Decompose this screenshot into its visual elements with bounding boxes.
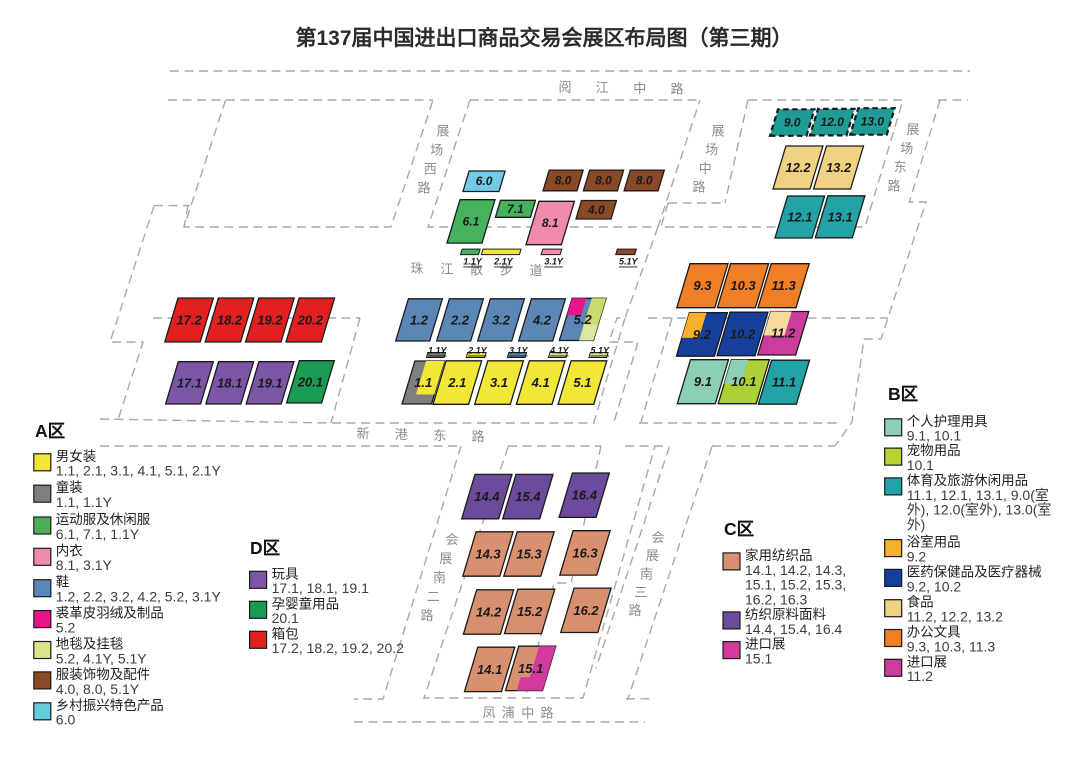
svg-text:8.0: 8.0 bbox=[555, 174, 572, 188]
svg-text:B区: B区 bbox=[888, 384, 918, 404]
svg-text:运动服及休闲服: 运动服及休闲服 bbox=[56, 512, 151, 527]
svg-text:17.1: 17.1 bbox=[177, 375, 202, 390]
svg-text:5.2, 4.1Y, 5.1Y: 5.2, 4.1Y, 5.1Y bbox=[56, 650, 147, 666]
svg-text:纺织原料面料: 纺织原料面料 bbox=[745, 607, 826, 622]
svg-text:8.0: 8.0 bbox=[595, 174, 612, 188]
svg-text:9.2, 10.2: 9.2, 10.2 bbox=[907, 578, 962, 594]
svg-text:19.1: 19.1 bbox=[257, 375, 282, 390]
svg-text:服装饰物及配件: 服装饰物及配件 bbox=[56, 667, 151, 682]
svg-text:裘革皮羽绒及制品: 裘革皮羽绒及制品 bbox=[56, 606, 164, 621]
svg-text:外): 外) bbox=[907, 517, 926, 533]
svg-text:食品: 食品 bbox=[907, 594, 934, 610]
svg-text:东: 东 bbox=[433, 428, 446, 443]
svg-text:1.1, 2.1, 3.1, 4.1, 5.1, 2.1Y: 1.1, 2.1, 3.1, 4.1, 5.1, 2.1Y bbox=[56, 463, 222, 479]
svg-text:路: 路 bbox=[887, 179, 900, 194]
svg-text:15.1, 15.2, 15.3,: 15.1, 15.2, 15.3, bbox=[745, 577, 846, 593]
svg-text:9.3, 10.3, 11.3: 9.3, 10.3, 11.3 bbox=[907, 638, 996, 654]
svg-text:会: 会 bbox=[445, 532, 458, 547]
svg-text:道: 道 bbox=[529, 263, 542, 278]
svg-text:路: 路 bbox=[692, 180, 705, 195]
svg-text:17.2, 18.2, 19.2, 20.2: 17.2, 18.2, 19.2, 20.2 bbox=[272, 640, 405, 656]
svg-text:10.2: 10.2 bbox=[730, 326, 756, 341]
svg-text:医药保健品及医疗器械: 医药保健品及医疗器械 bbox=[907, 564, 1042, 579]
svg-text:西: 西 bbox=[424, 162, 437, 177]
svg-text:5.1Y: 5.1Y bbox=[619, 257, 639, 267]
svg-text:14.3: 14.3 bbox=[475, 547, 501, 562]
svg-text:男女装: 男女装 bbox=[56, 448, 97, 464]
svg-text:4.1Y: 4.1Y bbox=[549, 346, 570, 356]
svg-text:10.1: 10.1 bbox=[907, 457, 934, 473]
svg-text:凤: 凤 bbox=[482, 705, 495, 720]
svg-text:7.1: 7.1 bbox=[507, 202, 524, 216]
svg-text:6.1: 6.1 bbox=[463, 214, 480, 228]
svg-text:浦: 浦 bbox=[502, 705, 515, 720]
svg-text:11.2: 11.2 bbox=[907, 668, 933, 684]
svg-text:8.1, 3.1Y: 8.1, 3.1Y bbox=[56, 557, 113, 573]
svg-text:8.0: 8.0 bbox=[636, 174, 653, 188]
svg-text:4.0: 4.0 bbox=[587, 203, 605, 217]
svg-text:乡村振兴特色产品: 乡村振兴特色产品 bbox=[56, 697, 164, 713]
svg-text:中: 中 bbox=[633, 81, 646, 96]
svg-text:5.1: 5.1 bbox=[573, 375, 591, 390]
svg-text:展: 展 bbox=[711, 124, 724, 139]
svg-text:3.1: 3.1 bbox=[490, 375, 508, 390]
svg-text:14.4: 14.4 bbox=[474, 489, 500, 504]
svg-text:19.2: 19.2 bbox=[257, 313, 283, 328]
svg-text:10.3: 10.3 bbox=[730, 278, 756, 293]
svg-text:11.1, 12.1, 13.1, 9.0(室: 11.1, 12.1, 13.1, 9.0(室 bbox=[907, 487, 1049, 503]
svg-text:1.1Y: 1.1Y bbox=[428, 346, 448, 356]
svg-text:体育及旅游休闲用品: 体育及旅游休闲用品 bbox=[907, 473, 1028, 488]
svg-text:2.2: 2.2 bbox=[450, 312, 470, 327]
svg-text:15.1: 15.1 bbox=[518, 661, 543, 676]
svg-text:11.2: 11.2 bbox=[771, 326, 796, 341]
svg-text:家用纺织品: 家用纺织品 bbox=[745, 547, 813, 563]
svg-text:16.2, 16.3: 16.2, 16.3 bbox=[745, 592, 807, 608]
svg-text:5.1Y: 5.1Y bbox=[591, 346, 611, 356]
svg-text:路: 路 bbox=[420, 608, 433, 623]
svg-text:会: 会 bbox=[651, 530, 664, 545]
svg-text:D区: D区 bbox=[250, 538, 280, 558]
svg-text:内衣: 内衣 bbox=[56, 543, 83, 558]
svg-text:15.4: 15.4 bbox=[515, 489, 541, 504]
svg-text:9.0: 9.0 bbox=[784, 116, 801, 130]
svg-text:2.1: 2.1 bbox=[447, 375, 466, 390]
svg-text:中: 中 bbox=[521, 705, 534, 720]
svg-text:12.2: 12.2 bbox=[785, 160, 811, 175]
svg-text:童装: 童装 bbox=[56, 479, 83, 495]
svg-text:9.3: 9.3 bbox=[693, 278, 712, 293]
svg-text:孕婴童用品: 孕婴童用品 bbox=[272, 595, 340, 611]
svg-text:展: 展 bbox=[646, 548, 659, 563]
svg-text:3.2: 3.2 bbox=[492, 312, 511, 327]
svg-text:17.2: 17.2 bbox=[176, 313, 202, 328]
svg-text:1.2: 1.2 bbox=[410, 312, 429, 327]
svg-text:个人护理用具: 个人护理用具 bbox=[907, 414, 988, 429]
svg-text:14.1, 14.2, 14.3,: 14.1, 14.2, 14.3, bbox=[745, 562, 846, 578]
svg-text:外), 12.0(室外), 13.0(室: 外), 12.0(室外), 13.0(室 bbox=[907, 502, 1052, 518]
svg-text:场: 场 bbox=[430, 143, 443, 158]
svg-text:12.1: 12.1 bbox=[787, 210, 812, 225]
svg-text:南: 南 bbox=[640, 567, 653, 582]
svg-text:办公文具: 办公文具 bbox=[907, 625, 961, 640]
svg-text:8.1: 8.1 bbox=[542, 216, 559, 230]
svg-text:展: 展 bbox=[439, 551, 452, 566]
svg-text:15.2: 15.2 bbox=[517, 604, 543, 619]
svg-text:10.1: 10.1 bbox=[731, 374, 756, 389]
svg-text:6.0: 6.0 bbox=[56, 712, 76, 728]
svg-text:鞋: 鞋 bbox=[56, 575, 70, 590]
svg-text:1.1Y: 1.1Y bbox=[463, 257, 483, 267]
svg-text:6.1, 7.1, 1.1Y: 6.1, 7.1, 1.1Y bbox=[56, 526, 140, 542]
svg-text:5.2: 5.2 bbox=[56, 620, 76, 636]
svg-text:13.2: 13.2 bbox=[826, 160, 852, 175]
svg-text:13.0: 13.0 bbox=[861, 114, 885, 128]
svg-text:15.3: 15.3 bbox=[516, 547, 542, 562]
svg-text:2.1Y: 2.1Y bbox=[467, 346, 488, 356]
svg-text:二: 二 bbox=[427, 589, 440, 604]
svg-text:14.2: 14.2 bbox=[476, 605, 502, 620]
svg-text:17.1, 18.1, 19.1: 17.1, 18.1, 19.1 bbox=[272, 580, 370, 596]
svg-text:展: 展 bbox=[906, 122, 919, 137]
svg-text:4.1: 4.1 bbox=[531, 375, 550, 390]
svg-text:路: 路 bbox=[628, 603, 641, 618]
svg-text:路: 路 bbox=[540, 706, 553, 721]
svg-text:珠: 珠 bbox=[410, 261, 423, 276]
svg-text:1.1, 1.1Y: 1.1, 1.1Y bbox=[56, 494, 113, 510]
svg-text:A区: A区 bbox=[35, 421, 65, 441]
svg-text:14.4, 15.4, 16.4: 14.4, 15.4, 16.4 bbox=[745, 621, 843, 637]
svg-text:9.1: 9.1 bbox=[694, 374, 712, 389]
svg-text:3.1Y: 3.1Y bbox=[509, 346, 529, 356]
svg-text:进口展: 进口展 bbox=[745, 637, 786, 652]
svg-text:进口展: 进口展 bbox=[907, 654, 948, 669]
svg-text:11.1: 11.1 bbox=[772, 375, 796, 390]
svg-text:12.0: 12.0 bbox=[821, 115, 845, 129]
svg-text:南: 南 bbox=[433, 570, 446, 585]
svg-text:16.4: 16.4 bbox=[572, 488, 598, 503]
svg-text:16.3: 16.3 bbox=[572, 545, 598, 560]
svg-text:箱包: 箱包 bbox=[272, 626, 299, 641]
svg-text:玩具: 玩具 bbox=[272, 566, 299, 581]
svg-text:江: 江 bbox=[596, 80, 609, 95]
svg-text:15.1: 15.1 bbox=[745, 651, 772, 667]
svg-text:3.1Y: 3.1Y bbox=[544, 257, 564, 267]
svg-text:18.2: 18.2 bbox=[217, 313, 243, 328]
svg-text:9.2: 9.2 bbox=[693, 327, 712, 342]
svg-text:9.2: 9.2 bbox=[907, 549, 927, 565]
svg-text:20.1: 20.1 bbox=[297, 374, 323, 389]
svg-text:2.1Y: 2.1Y bbox=[493, 257, 514, 267]
svg-text:14.1: 14.1 bbox=[477, 662, 502, 677]
svg-text:1.1: 1.1 bbox=[414, 375, 432, 390]
svg-text:地毯及挂毯: 地毯及挂毯 bbox=[56, 637, 124, 652]
svg-text:9.1, 10.1: 9.1, 10.1 bbox=[907, 428, 962, 444]
svg-text:路: 路 bbox=[670, 82, 683, 97]
svg-text:第137届中国进出口商品交易会展区布局图（第三期）: 第137届中国进出口商品交易会展区布局图（第三期） bbox=[295, 26, 792, 50]
svg-text:11.3: 11.3 bbox=[771, 278, 796, 293]
svg-text:浴室用品: 浴室用品 bbox=[907, 534, 961, 550]
svg-text:1.2, 2.2, 3.2, 4.2, 5.2, 3.1Y: 1.2, 2.2, 3.2, 4.2, 5.2, 3.1Y bbox=[56, 589, 222, 605]
svg-text:路: 路 bbox=[417, 181, 430, 196]
svg-text:18.1: 18.1 bbox=[217, 375, 242, 390]
svg-text:5.2: 5.2 bbox=[574, 312, 593, 327]
svg-text:新: 新 bbox=[356, 426, 369, 441]
svg-text:20.2: 20.2 bbox=[297, 313, 324, 328]
svg-text:场: 场 bbox=[705, 142, 718, 157]
svg-text:阅: 阅 bbox=[558, 80, 571, 95]
svg-text:11.2, 12.2, 13.2: 11.2, 12.2, 13.2 bbox=[907, 609, 1003, 625]
svg-text:16.2: 16.2 bbox=[573, 603, 599, 618]
svg-text:13.1: 13.1 bbox=[827, 209, 852, 224]
svg-text:港: 港 bbox=[395, 427, 408, 442]
svg-text:宠物用品: 宠物用品 bbox=[907, 443, 961, 458]
svg-text:中: 中 bbox=[699, 161, 712, 176]
svg-text:4.0, 8.0, 5.1Y: 4.0, 8.0, 5.1Y bbox=[56, 681, 140, 697]
svg-text:江: 江 bbox=[440, 262, 453, 277]
svg-text:6.0: 6.0 bbox=[476, 174, 493, 188]
svg-text:三: 三 bbox=[634, 585, 647, 600]
svg-text:东: 东 bbox=[894, 160, 907, 175]
svg-text:20.1: 20.1 bbox=[272, 610, 299, 626]
svg-text:路: 路 bbox=[471, 429, 484, 444]
svg-text:展: 展 bbox=[436, 124, 449, 139]
svg-text:场: 场 bbox=[900, 141, 913, 156]
svg-text:4.2: 4.2 bbox=[532, 312, 552, 327]
svg-text:C区: C区 bbox=[724, 519, 754, 539]
